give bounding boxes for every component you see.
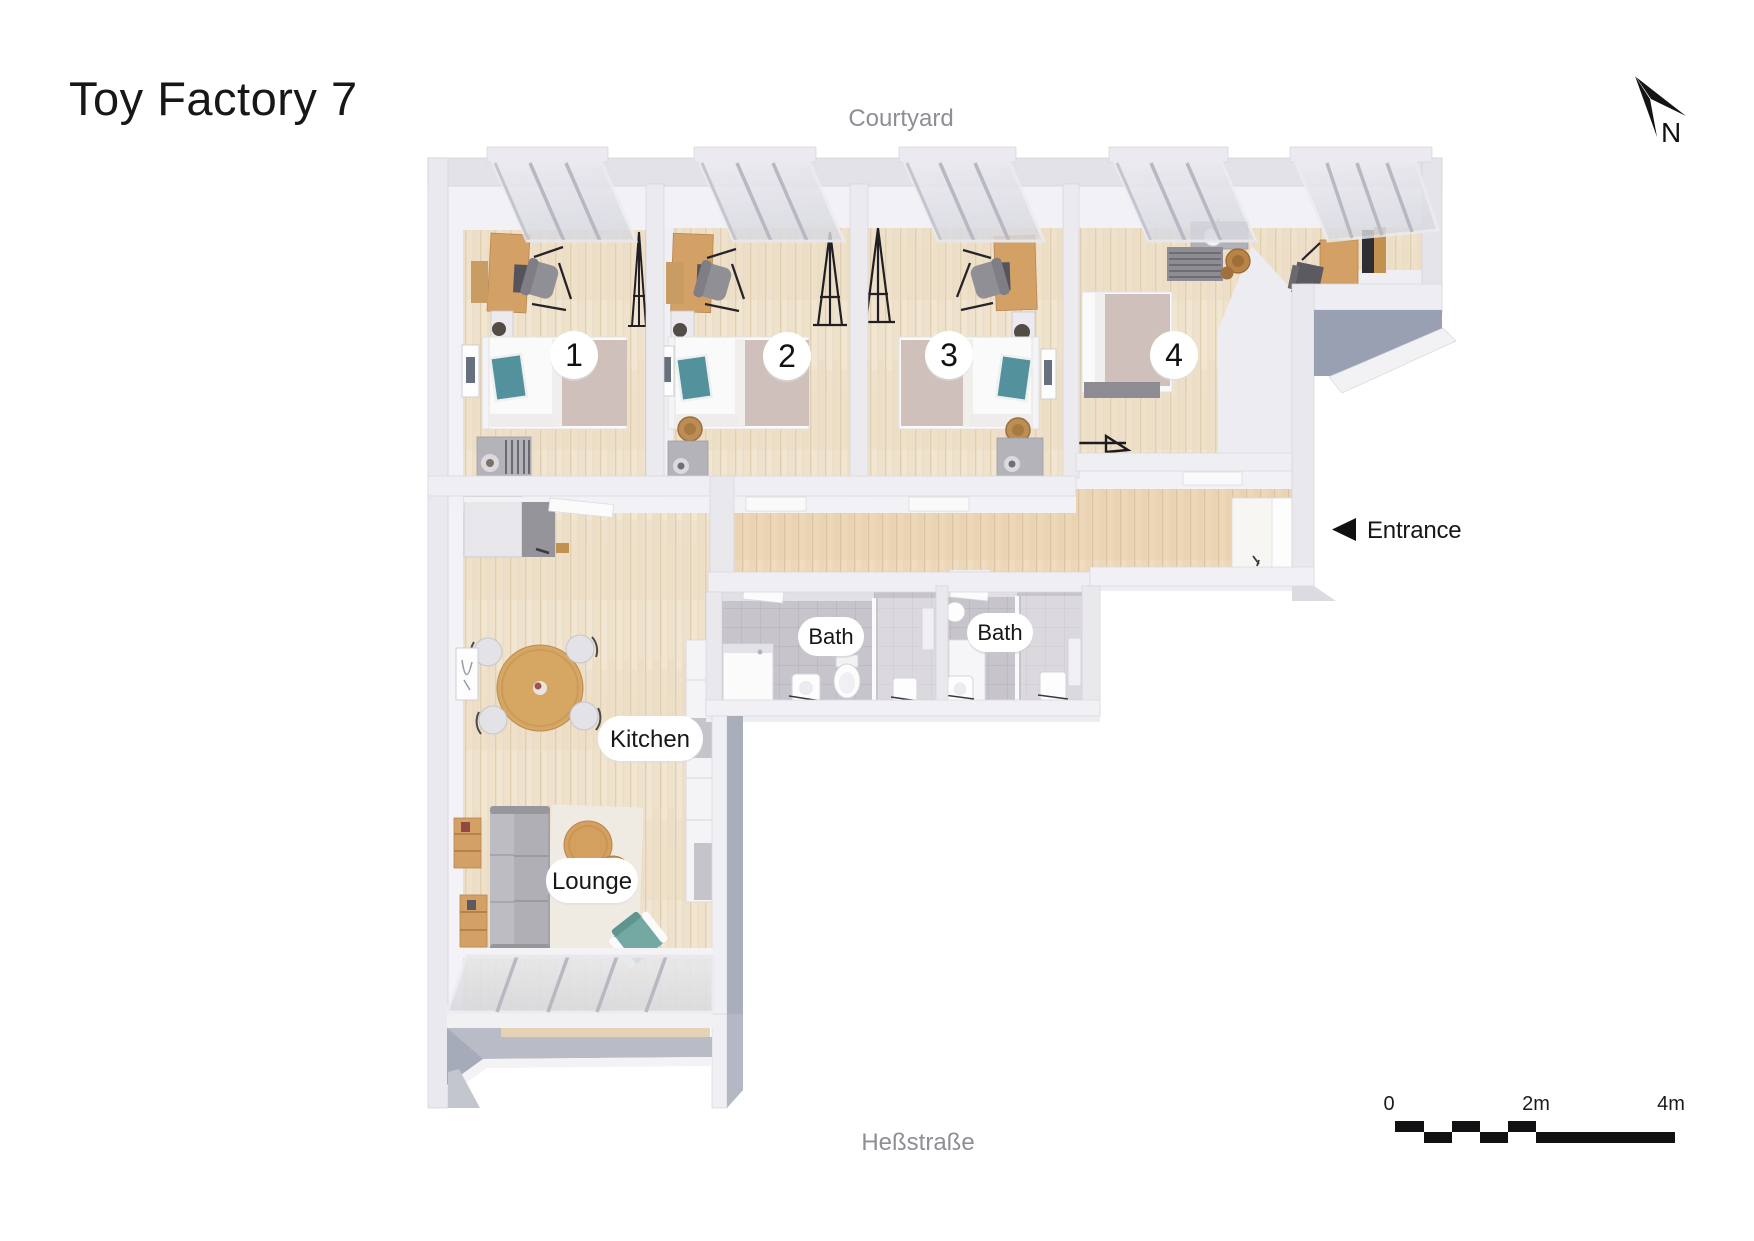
svg-text:4m: 4m: [1657, 1093, 1685, 1115]
svg-text:Bath: Bath: [808, 624, 853, 649]
svg-text:2m: 2m: [1522, 1093, 1550, 1115]
svg-text:4: 4: [1165, 337, 1183, 373]
svg-text:Toy Factory 7: Toy Factory 7: [69, 72, 358, 125]
svg-text:2: 2: [778, 338, 796, 374]
svg-text:1: 1: [565, 337, 583, 373]
svg-text:Kitchen: Kitchen: [610, 726, 690, 753]
svg-text:Heßstraße: Heßstraße: [861, 1129, 974, 1156]
svg-text:0: 0: [1383, 1093, 1394, 1115]
svg-text:Entrance: Entrance: [1367, 517, 1461, 544]
svg-text:Lounge: Lounge: [552, 868, 632, 895]
svg-text:Bath: Bath: [977, 620, 1022, 645]
svg-text:N: N: [1661, 117, 1681, 148]
svg-text:3: 3: [940, 337, 958, 373]
svg-text:Courtyard: Courtyard: [848, 105, 953, 132]
